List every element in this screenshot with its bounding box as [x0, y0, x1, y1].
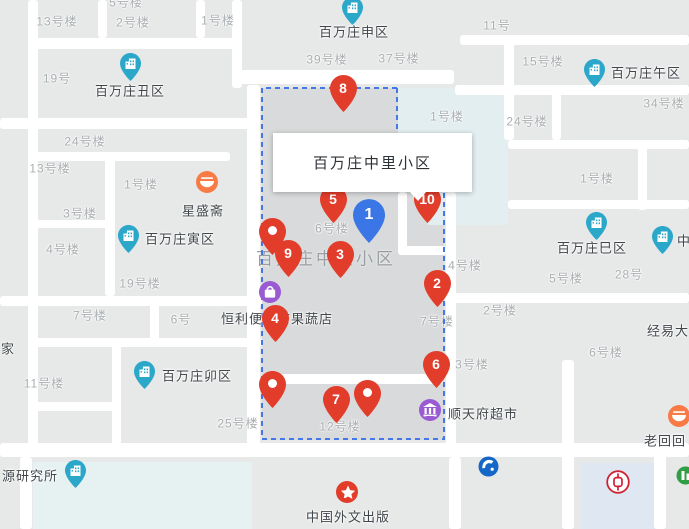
map-pin-1[interactable]: 1 [353, 199, 385, 243]
map-canvas[interactable]: 百万庄中里小区 5号楼13号楼2号楼1号楼19号39号楼37号楼11号15号楼3… [0, 0, 689, 529]
info-card: 百万庄中里小区 [273, 133, 472, 192]
map-dot-pin[interactable] [259, 218, 286, 255]
map-pin-6[interactable]: 6 [423, 351, 450, 388]
map-pin-4[interactable]: 4 [262, 305, 289, 342]
map-pin-7[interactable]: 7 [323, 386, 350, 423]
map-pin-2[interactable]: 2 [424, 270, 451, 307]
info-card-title: 百万庄中里小区 [313, 152, 432, 173]
map-pin-8[interactable]: 8 [330, 75, 357, 112]
map-dot-pin[interactable] [259, 371, 286, 408]
map-dot-pin[interactable] [354, 380, 381, 417]
map-pin-3[interactable]: 3 [327, 241, 354, 278]
